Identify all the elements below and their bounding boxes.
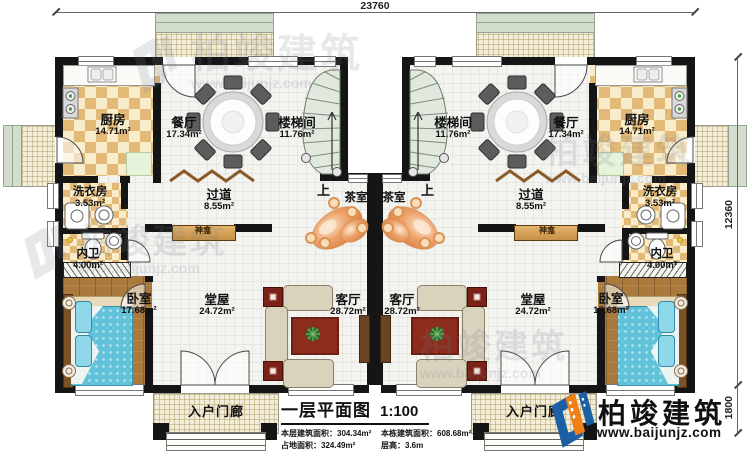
room-label-bathroom: 内卫4.00m² xyxy=(647,248,677,272)
kitchen-sink xyxy=(634,67,662,82)
plan-scale: 1:100 xyxy=(380,403,418,420)
unit-left xyxy=(0,0,375,455)
room-label-dining: 餐厅17.34m² xyxy=(166,116,201,141)
title-underline xyxy=(281,423,429,425)
floor-plan: 厨房14.71m² 厨房14.71m² 餐厅17.34m² 餐厅17.34m² … xyxy=(0,0,750,455)
tea-table-stone xyxy=(377,198,445,262)
room-label-bedroom: 卧室17.68m² xyxy=(593,292,628,317)
dimension-right-main: 12360 xyxy=(723,200,735,229)
screen-partition xyxy=(496,171,580,181)
nightstand xyxy=(63,297,76,378)
plant-icon xyxy=(306,327,320,341)
room-label-corridor: 过道8.55m² xyxy=(516,188,546,213)
stove xyxy=(672,88,687,118)
brand-logo-icon xyxy=(547,386,601,450)
dimension-line-right xyxy=(737,57,738,433)
room-label-kitchen: 厨房14.71m² xyxy=(619,113,654,138)
screen-partition xyxy=(170,171,254,181)
stairs-up-label: 上 xyxy=(317,180,330,199)
room-label-kitchen: 厨房14.71m² xyxy=(95,113,130,138)
nightstand xyxy=(675,297,688,378)
room-label-hall: 堂屋24.72m² xyxy=(515,293,550,318)
kitchen-sink xyxy=(88,67,116,82)
plant-icon xyxy=(430,327,444,341)
room-label-laundry: 洗衣房3.53m² xyxy=(643,186,678,210)
room-label-bedroom: 卧室17.68m² xyxy=(121,292,156,317)
room-label-dining: 餐厅17.34m² xyxy=(548,116,583,141)
stat-footprint-area: 占地面积：324.49m² xyxy=(281,440,377,451)
entry-porch-label: 入户门廊 xyxy=(188,405,244,420)
dimension-top: 23760 xyxy=(360,0,389,12)
dimension-line-top xyxy=(55,12,695,13)
room-label-hall: 堂屋24.72m² xyxy=(199,293,234,318)
room-label-living: 客厅28.72m² xyxy=(384,293,419,318)
plan-title: 一层平面图 xyxy=(281,401,371,420)
room-label-living: 客厅28.72m² xyxy=(330,293,365,318)
shrine-label: 神龛 xyxy=(195,227,211,236)
room-label-laundry: 洗衣房3.53m² xyxy=(73,186,108,210)
unit-vector-layer xyxy=(0,0,375,455)
plan-title-row: 一层平面图1:100 xyxy=(281,396,486,421)
stat-floor-area: 本层建筑面积：304.34m² xyxy=(281,428,377,439)
room-label-bathroom: 内卫4.00m² xyxy=(73,248,103,272)
title-block: 一层平面图1:100 本层建筑面积：304.34m² 本栋建筑面积：608.68… xyxy=(281,396,486,451)
room-label-tea-room: 茶室 xyxy=(345,192,368,205)
brand-website: www.baijunjz.com xyxy=(597,425,722,440)
stat-floor-height: 层高：3.6m xyxy=(381,440,486,451)
room-label-stairwell: 楼梯间11.76m² xyxy=(434,116,472,141)
room-label-tea-room: 茶室 xyxy=(383,192,406,205)
stove xyxy=(63,88,78,118)
shrine-label: 神龛 xyxy=(539,227,555,236)
stat-building-area: 本栋建筑面积：608.68m² xyxy=(381,428,486,439)
plan-stats: 本层建筑面积：304.34m² 本栋建筑面积：608.68m² 占地面积：324… xyxy=(281,428,486,451)
room-label-stairwell: 楼梯间11.76m² xyxy=(278,116,316,141)
stairs-up-label: 上 xyxy=(421,180,434,199)
room-label-corridor: 过道8.55m² xyxy=(204,188,234,213)
tea-table-stone xyxy=(304,198,372,262)
